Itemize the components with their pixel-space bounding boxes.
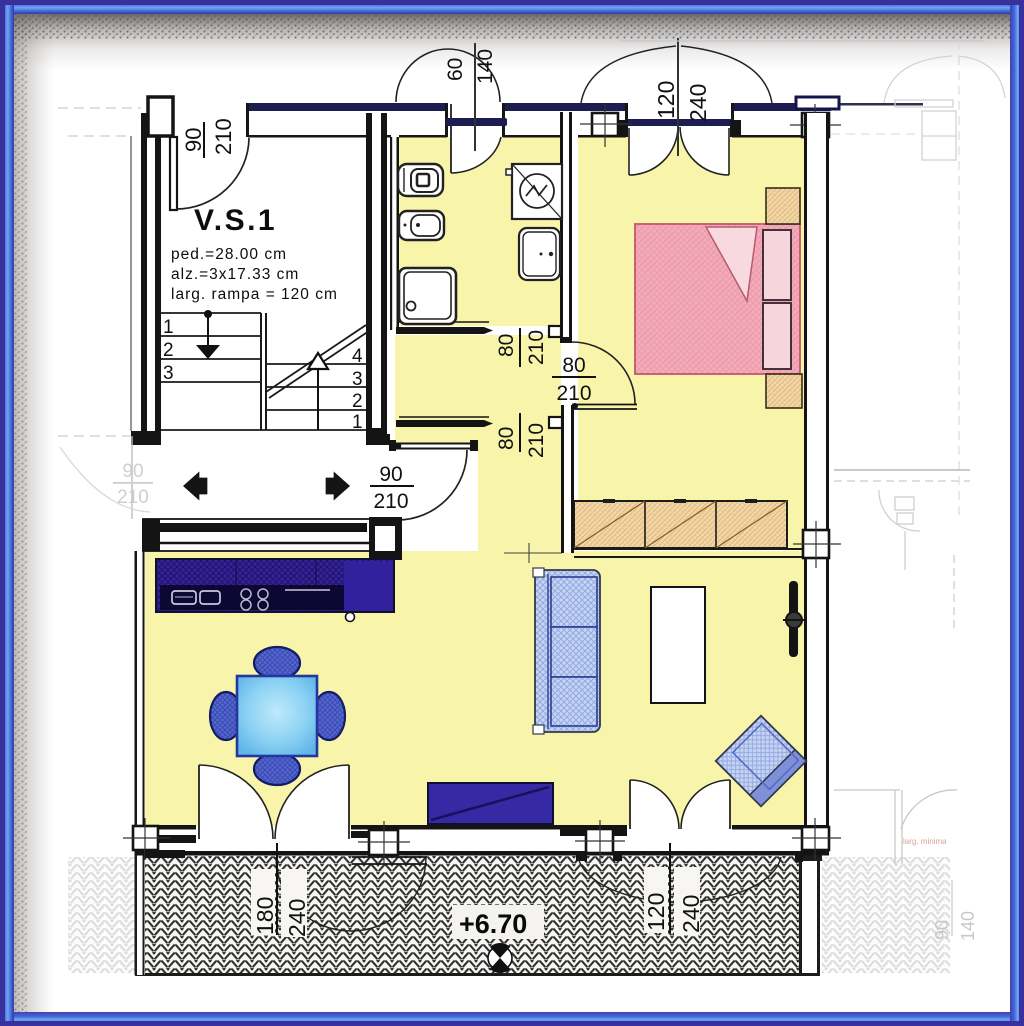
svg-text:210: 210 [211, 118, 236, 155]
svg-text:2: 2 [352, 391, 363, 412]
svg-text:210: 210 [373, 490, 408, 513]
svg-text:ped.=28.00 cm: ped.=28.00 cm [171, 246, 287, 263]
svg-text:90: 90 [932, 920, 952, 940]
svg-text:90: 90 [379, 463, 402, 486]
svg-text:alz.=3x17.33 cm: alz.=3x17.33 cm [171, 266, 299, 283]
svg-text:180: 180 [252, 897, 278, 935]
svg-text:60: 60 [444, 58, 467, 81]
svg-text:80: 80 [562, 354, 585, 377]
svg-text:80: 80 [495, 334, 518, 357]
svg-text:120: 120 [643, 893, 669, 931]
svg-text:210: 210 [556, 382, 591, 405]
svg-text:240: 240 [284, 899, 310, 937]
svg-text:210: 210 [525, 330, 548, 365]
svg-text:90: 90 [181, 128, 206, 152]
svg-text:2: 2 [163, 340, 174, 361]
svg-text:210: 210 [117, 487, 149, 508]
svg-text:210: 210 [525, 423, 548, 458]
svg-text:4: 4 [352, 346, 363, 367]
svg-text:V.S.1: V.S.1 [194, 204, 277, 237]
svg-text:140: 140 [958, 911, 978, 941]
svg-text:1: 1 [352, 412, 363, 433]
svg-text:larg. minima: larg. minima [903, 837, 947, 846]
svg-text:1: 1 [163, 317, 174, 338]
svg-text:240: 240 [678, 895, 704, 933]
svg-text:140: 140 [474, 49, 497, 84]
svg-text:3: 3 [163, 363, 174, 384]
svg-text:120: 120 [653, 81, 679, 119]
svg-text:3: 3 [352, 369, 363, 390]
svg-text:240: 240 [685, 84, 711, 122]
svg-text:90: 90 [122, 461, 143, 482]
svg-text:80: 80 [495, 427, 518, 450]
svg-text:larg. rampa = 120 cm: larg. rampa = 120 cm [171, 286, 338, 303]
svg-text:+6.70: +6.70 [459, 909, 527, 939]
